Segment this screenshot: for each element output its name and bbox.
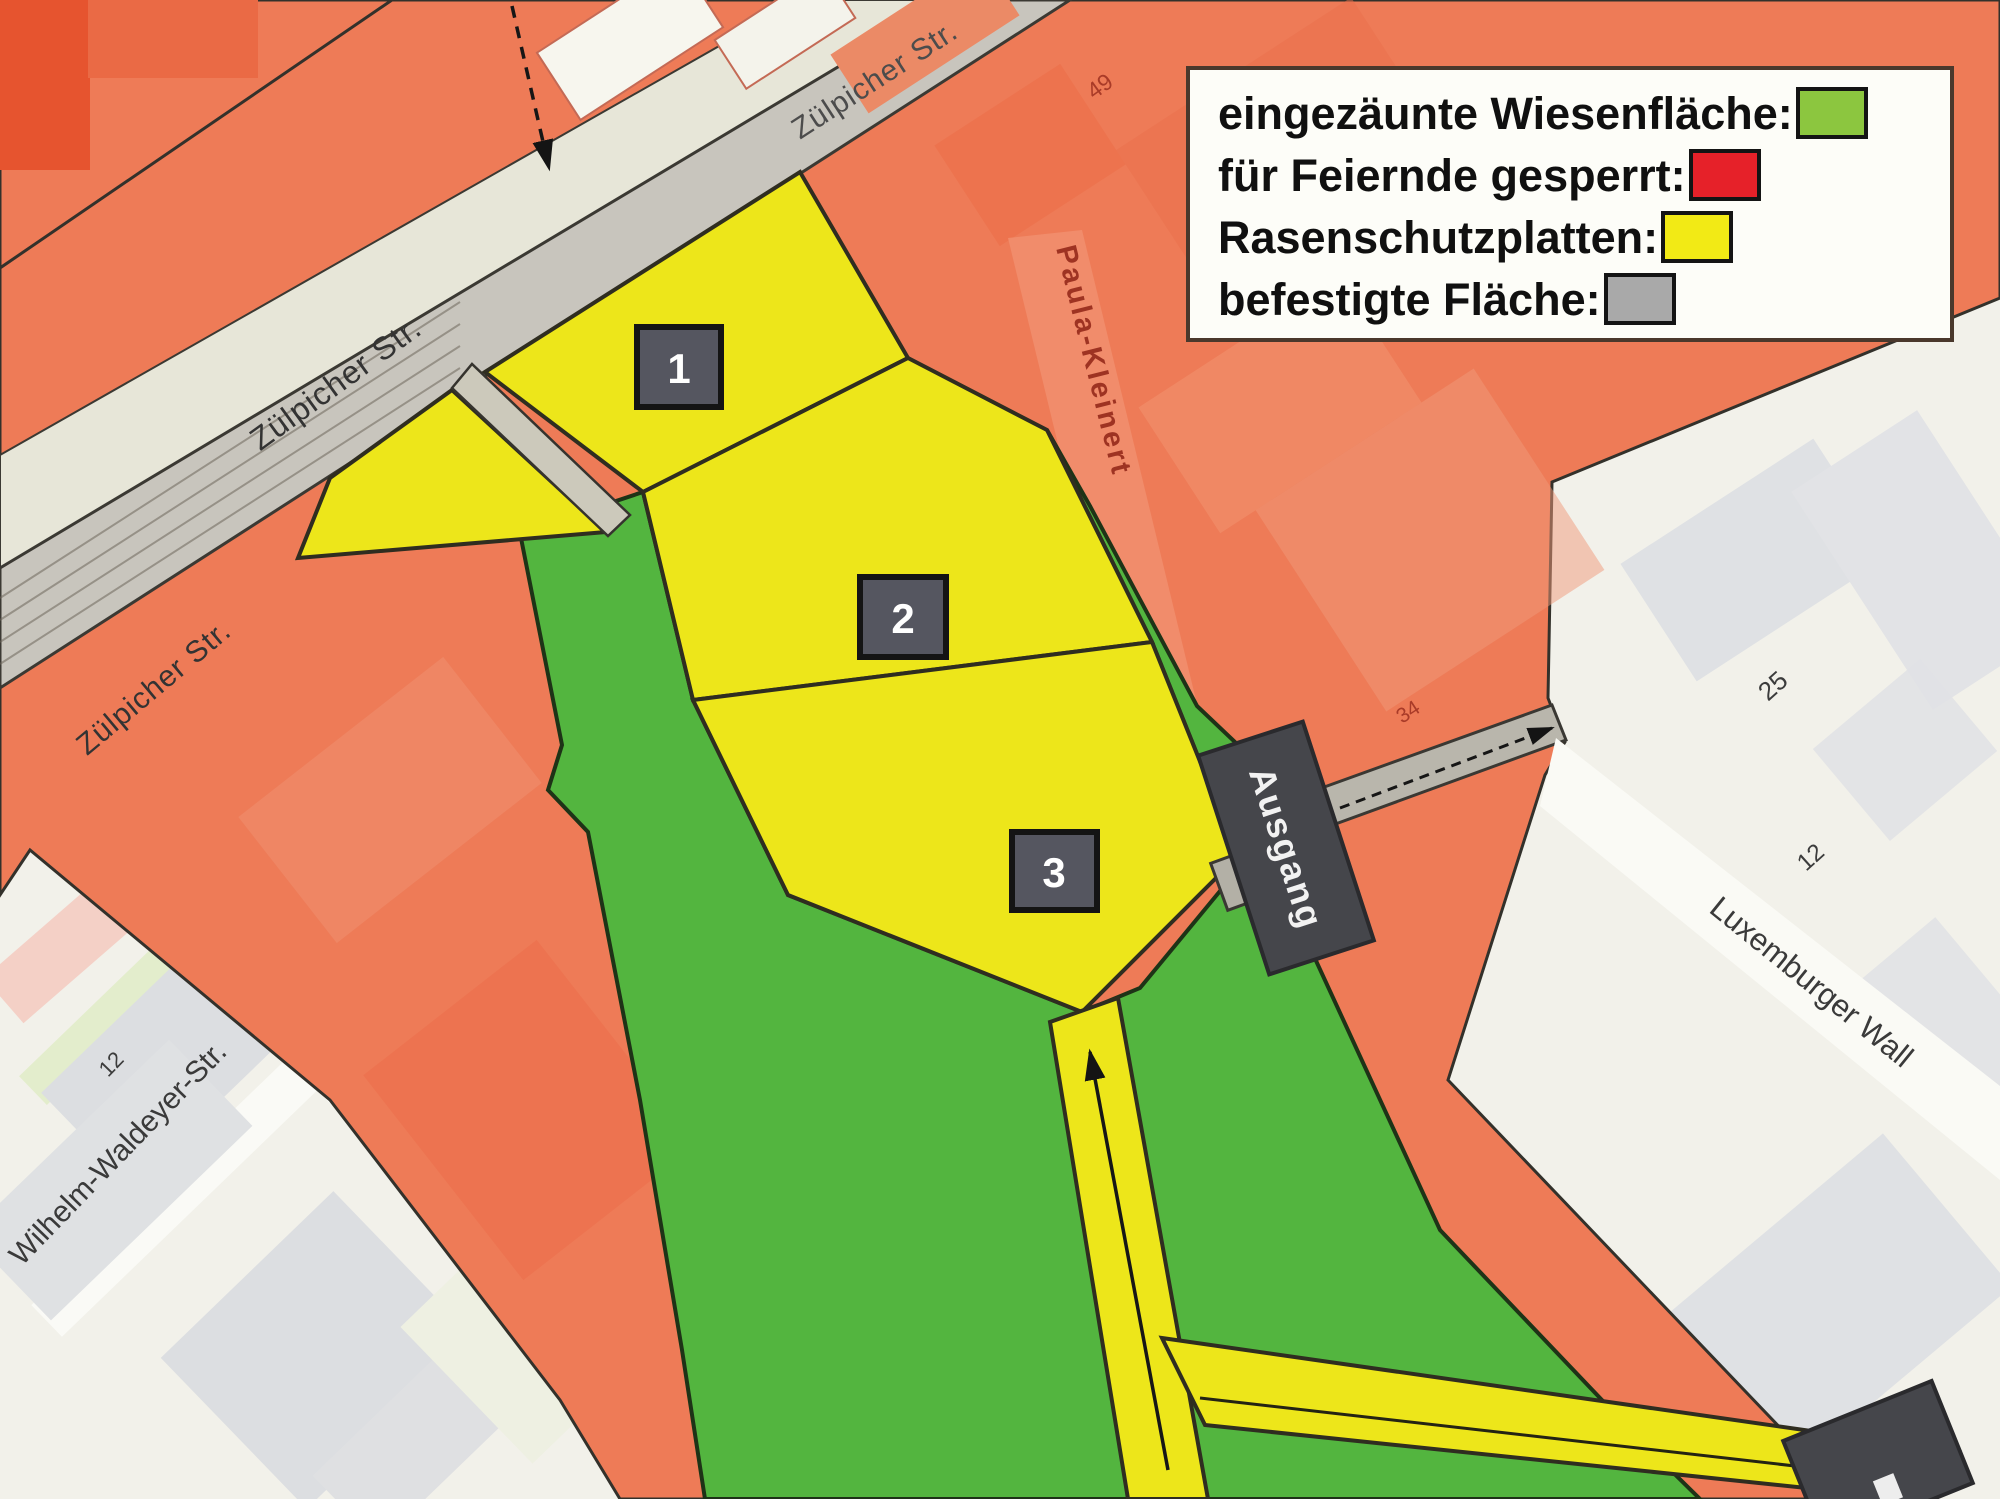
legend-swatch-meadow-green (1796, 87, 1868, 139)
map-legend: eingezäunte Wiesenfläche: für Feiernde g… (1186, 66, 1954, 342)
legend-label-paved: befestigte Fläche: (1218, 277, 1601, 322)
legend-row-paved: befestigte Fläche: (1218, 268, 1950, 330)
legend-swatch-closed-red (1689, 149, 1761, 201)
svg-text:1: 1 (667, 345, 690, 392)
svg-text:2: 2 (891, 595, 914, 642)
legend-swatch-paved-gray (1604, 273, 1676, 325)
area-marker-1: 1 (637, 327, 721, 407)
site-plan-map: Paula-Kleinert 49 34 Luxemburger W (0, 0, 2000, 1499)
legend-label-plates: Rasenschutzplatten: (1218, 215, 1658, 260)
svg-text:3: 3 (1042, 849, 1065, 896)
legend-label-closed: für Feiernde gesperrt: (1218, 153, 1686, 198)
legend-label-meadow: eingezäunte Wiesenfläche: (1218, 91, 1793, 136)
legend-swatch-plates-yellow (1661, 211, 1733, 263)
legend-row-closed: für Feiernde gesperrt: (1218, 144, 1950, 206)
red-corner-tint-2 (88, 0, 258, 78)
red-corner-tint (0, 0, 90, 170)
legend-row-meadow: eingezäunte Wiesenfläche: (1218, 82, 1950, 144)
area-marker-2: 2 (860, 577, 946, 657)
legend-row-plates: Rasenschutzplatten: (1218, 206, 1950, 268)
area-marker-3: 3 (1012, 832, 1097, 910)
